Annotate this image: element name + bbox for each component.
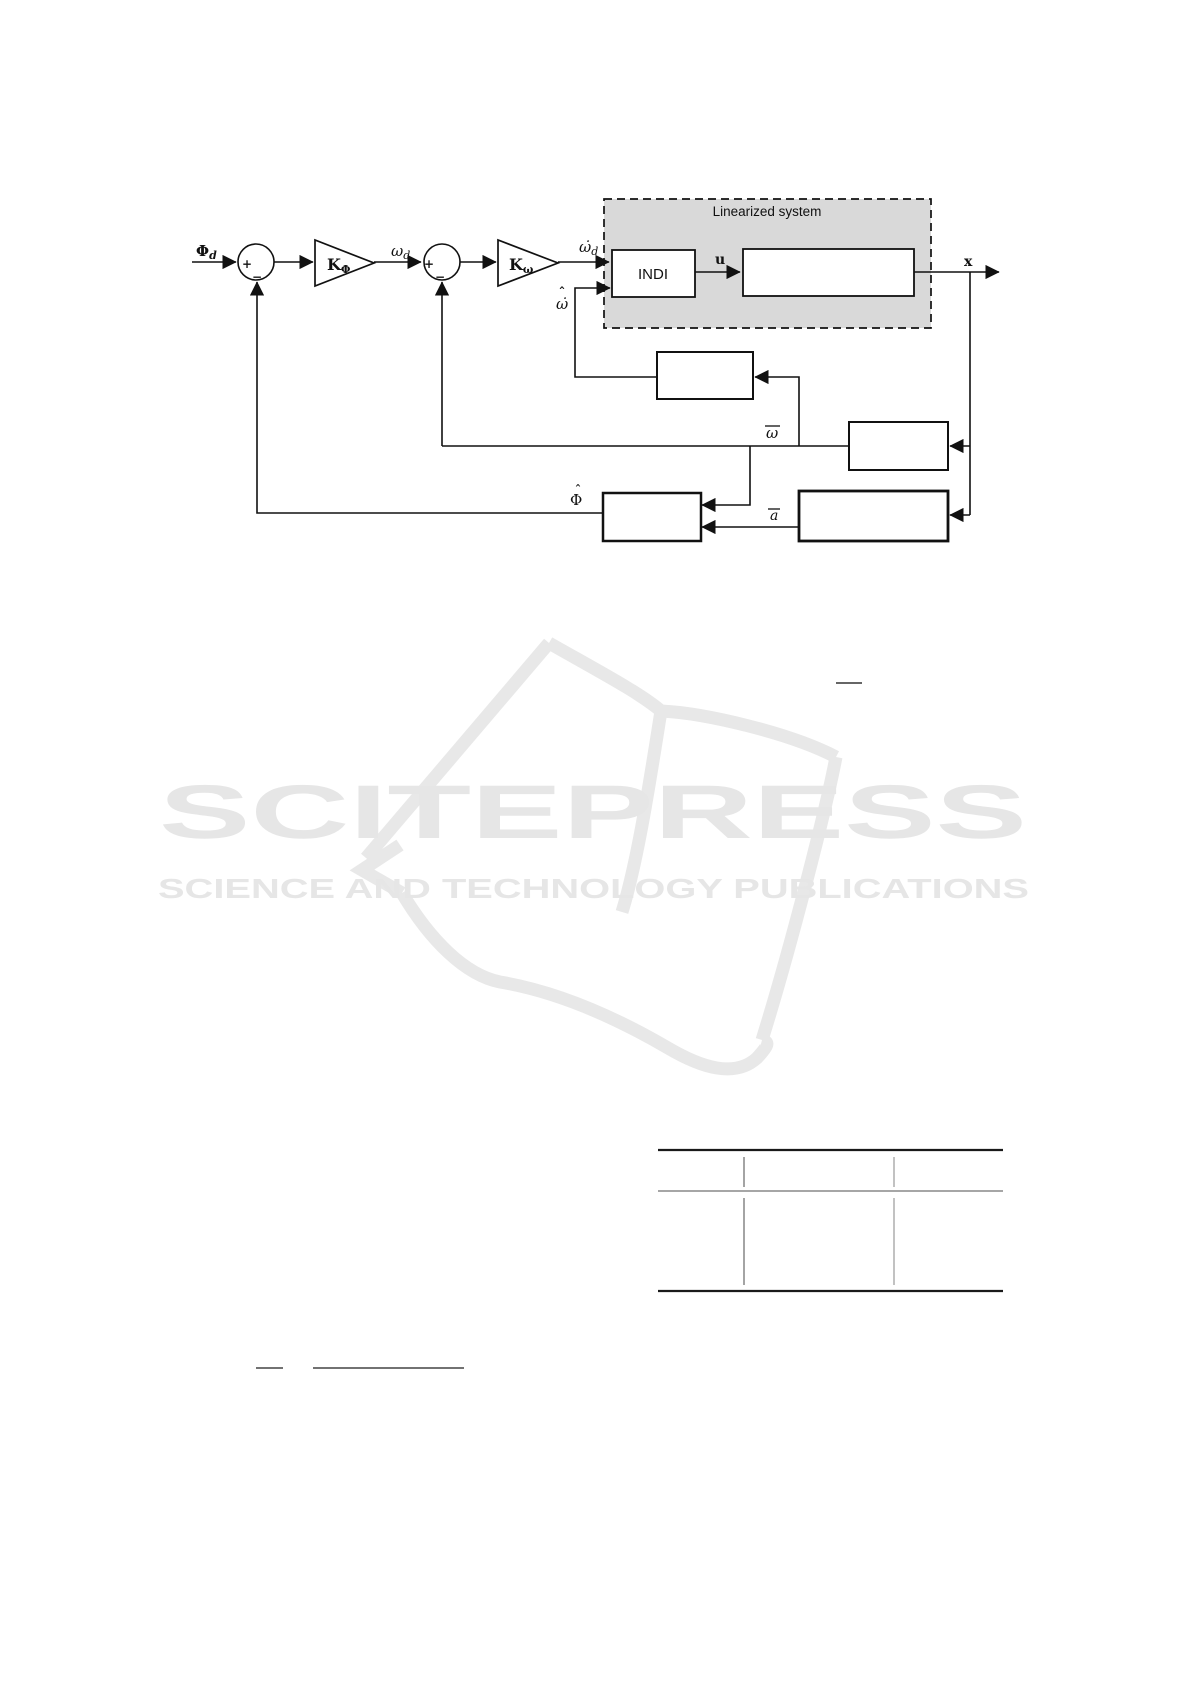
phi-hat-label: Φ	[570, 491, 582, 509]
accel-measurement-block	[799, 491, 948, 541]
attitude-estimator-block	[603, 493, 701, 541]
sum1-minus-sign: −	[252, 270, 262, 284]
paper-page: SCITEPRESS SCIENCE AND TECHNOLOGY PUBLIC…	[0, 0, 1191, 1684]
a-bar-label: a	[770, 508, 778, 524]
sum1-plus-sign: +	[242, 257, 252, 271]
omega-hat-label: ω̇	[556, 295, 568, 313]
rate-filter-block	[657, 352, 753, 399]
plant-block	[743, 249, 914, 296]
sum2-minus-sign: −	[435, 270, 445, 284]
indi-block-label: INDI	[638, 266, 668, 283]
page-canvas: SCITEPRESS SCIENCE AND TECHNOLOGY PUBLIC…	[0, 0, 1191, 1684]
x-signal-label: x	[964, 254, 973, 270]
watermark-brand-text: SCITEPRESS	[159, 770, 1027, 855]
omega-bar-label: ω	[766, 424, 778, 442]
linearized-system-title: Linearized system	[713, 204, 822, 219]
sum2-plus-sign: +	[424, 257, 434, 271]
omega-measurement-block	[849, 422, 948, 470]
watermark-tagline-text: SCIENCE AND TECHNOLOGY PUBLICATIONS	[158, 873, 1029, 904]
u-signal-label: u	[715, 252, 725, 268]
